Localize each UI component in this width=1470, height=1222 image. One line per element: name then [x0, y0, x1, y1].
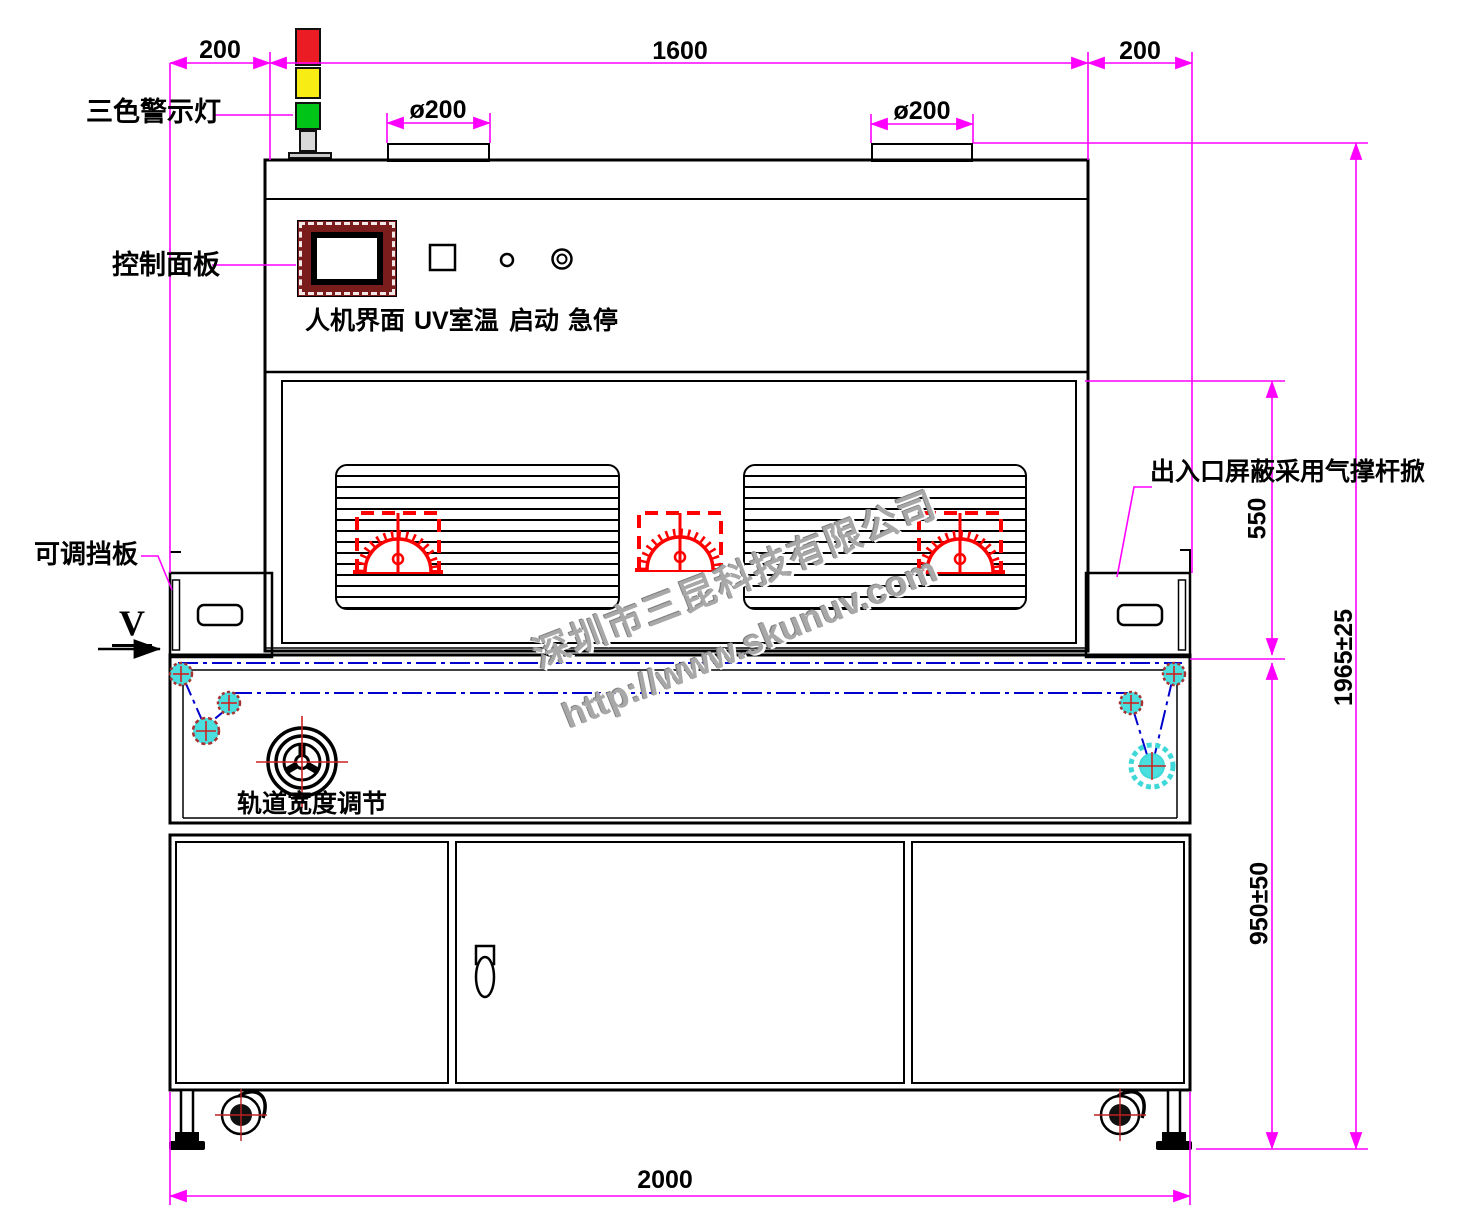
dim-text-base-width: 2000 [615, 1166, 715, 1195]
label-tricolor-warning-light: 三色警示灯 [86, 98, 221, 128]
uv-machine-front-view-drawing: 深圳市三昆科技有限公司 http://www.skunuv.com 三色警示灯 … [0, 0, 1470, 1222]
label-track-width-adjust: 轨道宽度调节 [237, 791, 387, 819]
dim-text-duct-right: ø200 [877, 97, 967, 126]
dim-text-duct-left: ø200 [393, 96, 483, 125]
label-control-panel: 控制面板 [112, 251, 220, 281]
view-marker-v: V [112, 604, 152, 647]
label-emergency-stop: 急停 [568, 308, 618, 336]
dim-text-table-height: 950±50 [1246, 849, 1275, 959]
label-gas-strut-note: 出入口屏蔽采用气撑杆掀 [1150, 459, 1425, 487]
dim-text-total-height: 1965±25 [1330, 595, 1359, 720]
label-adjustable-baffle: 可调挡板 [34, 540, 138, 569]
dim-text-top-right: 200 [1105, 37, 1175, 66]
label-start: 启动 [509, 308, 559, 336]
dim-text-chamber-height: 550 [1244, 484, 1273, 554]
dim-text-top-span: 1600 [630, 37, 730, 66]
label-uv-room-temp: UV室温 [414, 308, 499, 336]
labels-layer: 三色警示灯 控制面板 人机界面 UV室温 启动 急停 可调挡板 出入口屏蔽采用气… [0, 0, 1470, 1222]
label-hmi: 人机界面 [305, 308, 405, 336]
dim-text-top-left: 200 [185, 36, 255, 65]
